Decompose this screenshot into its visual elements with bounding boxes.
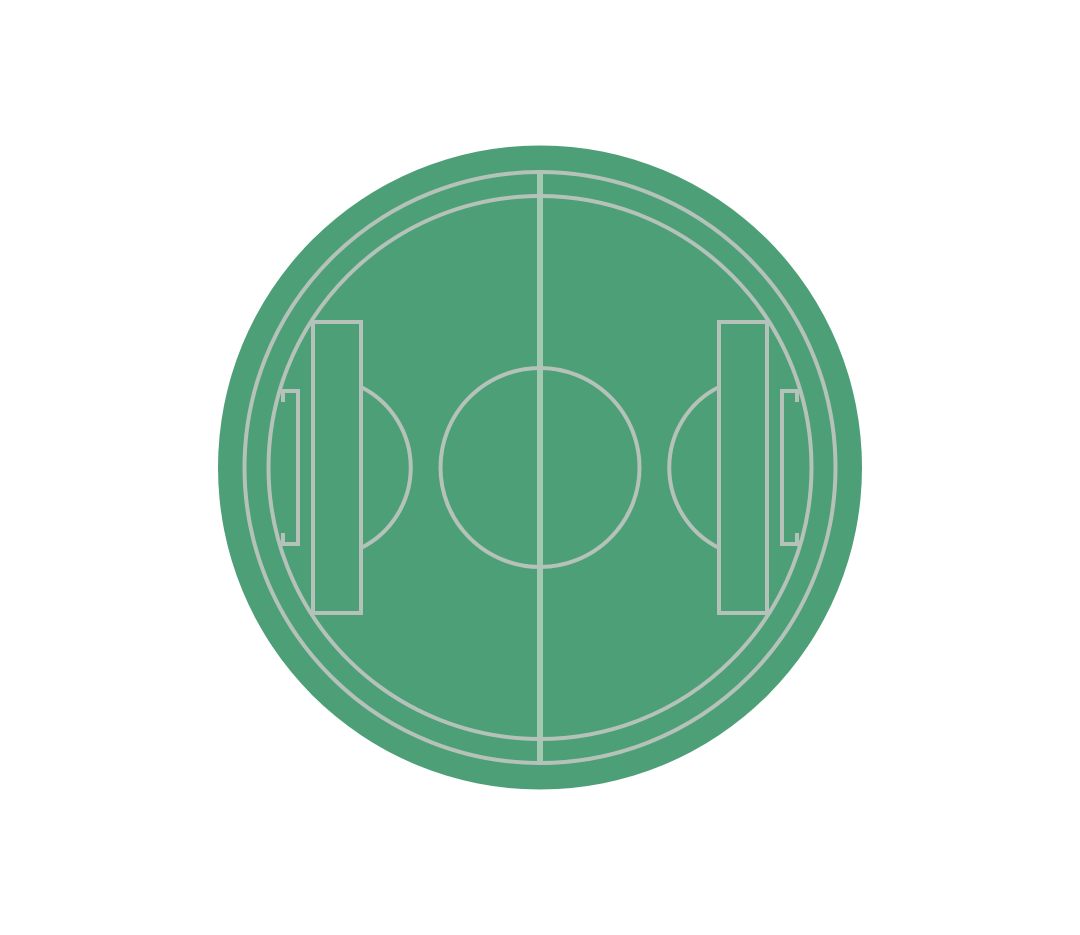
icon-canvas <box>0 0 1080 935</box>
soccer-pitch-icon <box>0 0 1080 935</box>
